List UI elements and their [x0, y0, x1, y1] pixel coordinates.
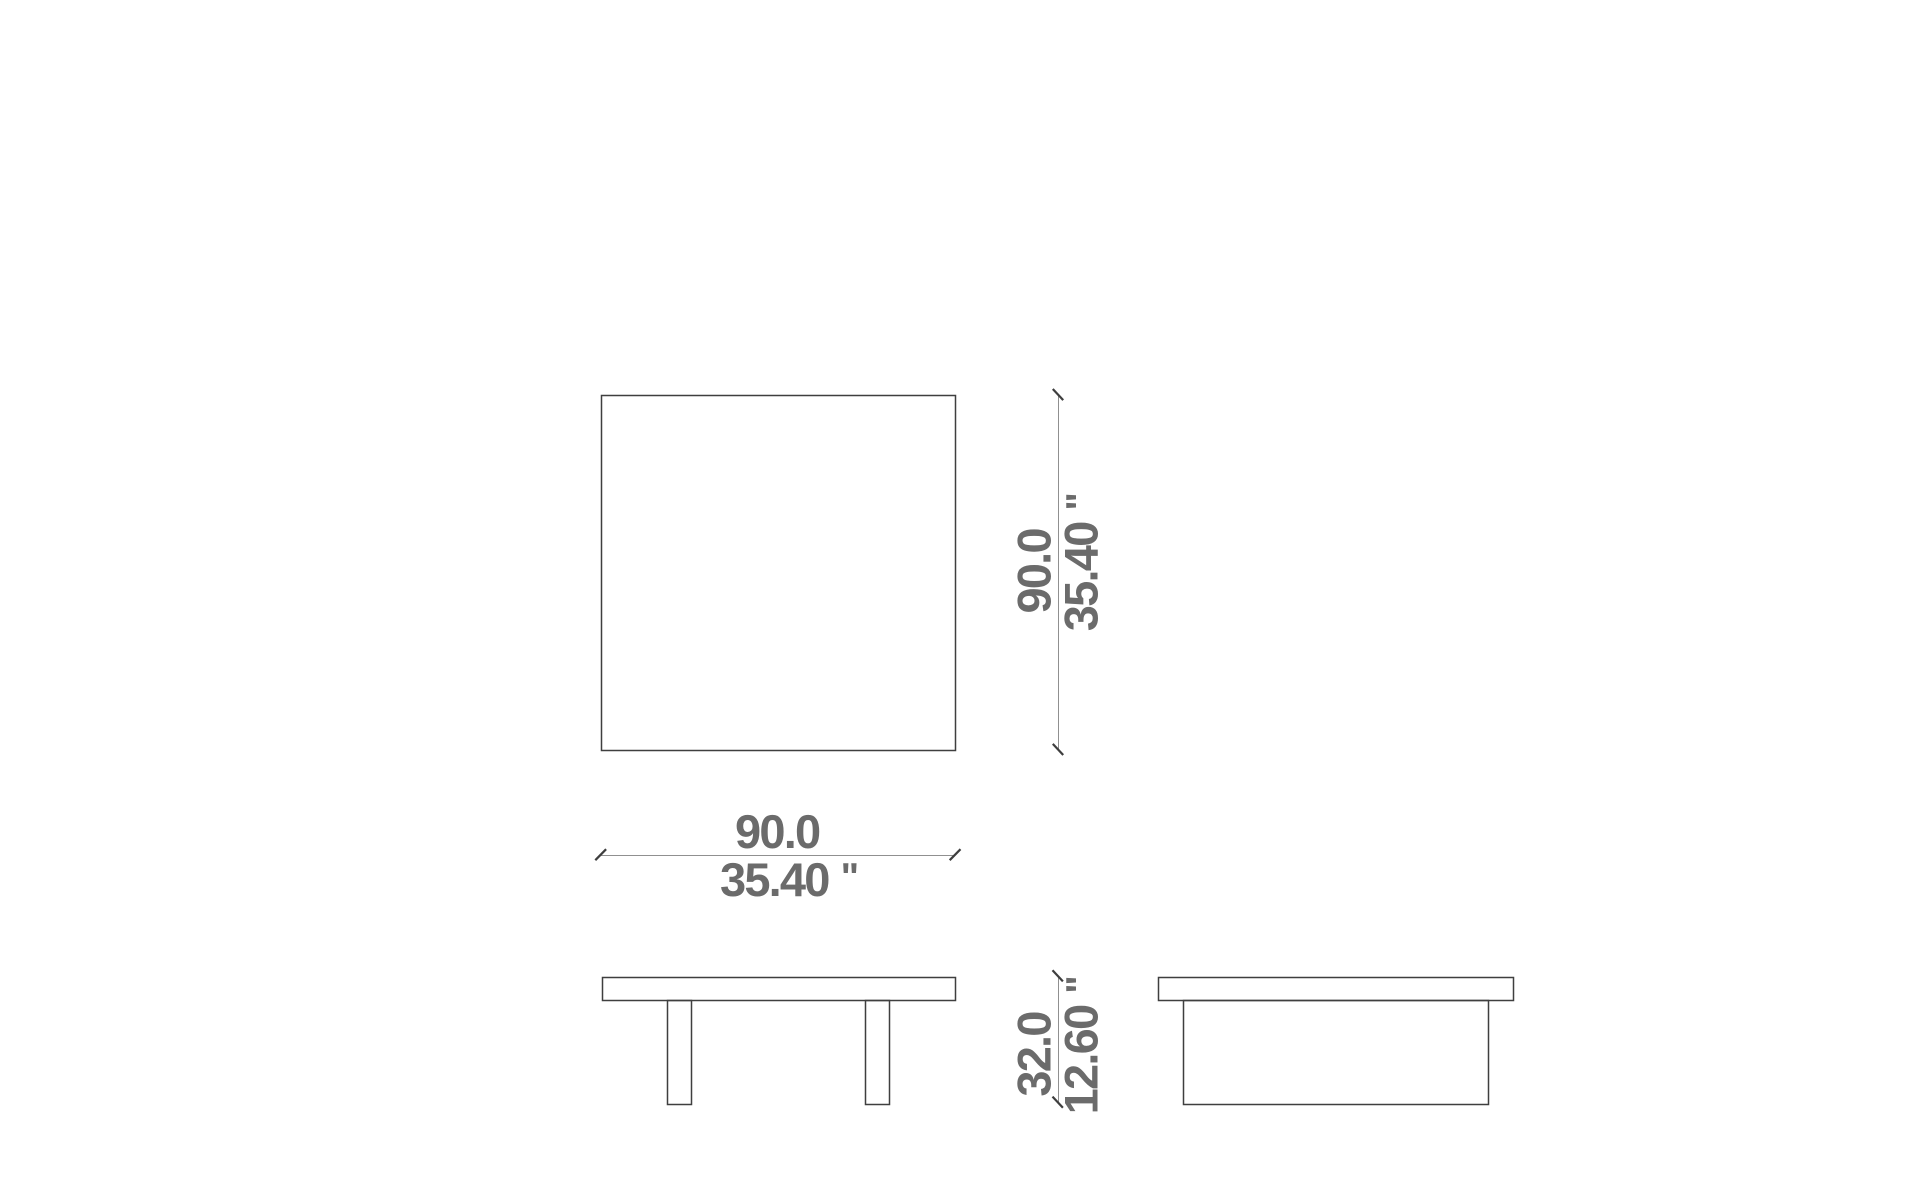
svg-text:35.40: 35.40 [720, 853, 829, 906]
svg-text:": " [1059, 494, 1102, 511]
svg-text:90.0: 90.0 [735, 805, 820, 858]
svg-text:35.40: 35.40 [1055, 522, 1108, 631]
svg-text:12.60: 12.60 [1055, 1005, 1108, 1114]
svg-text:": " [841, 856, 858, 899]
svg-text:32.0: 32.0 [1008, 1012, 1061, 1097]
svg-text:": " [1059, 977, 1102, 994]
svg-text:90.0: 90.0 [1008, 529, 1061, 614]
